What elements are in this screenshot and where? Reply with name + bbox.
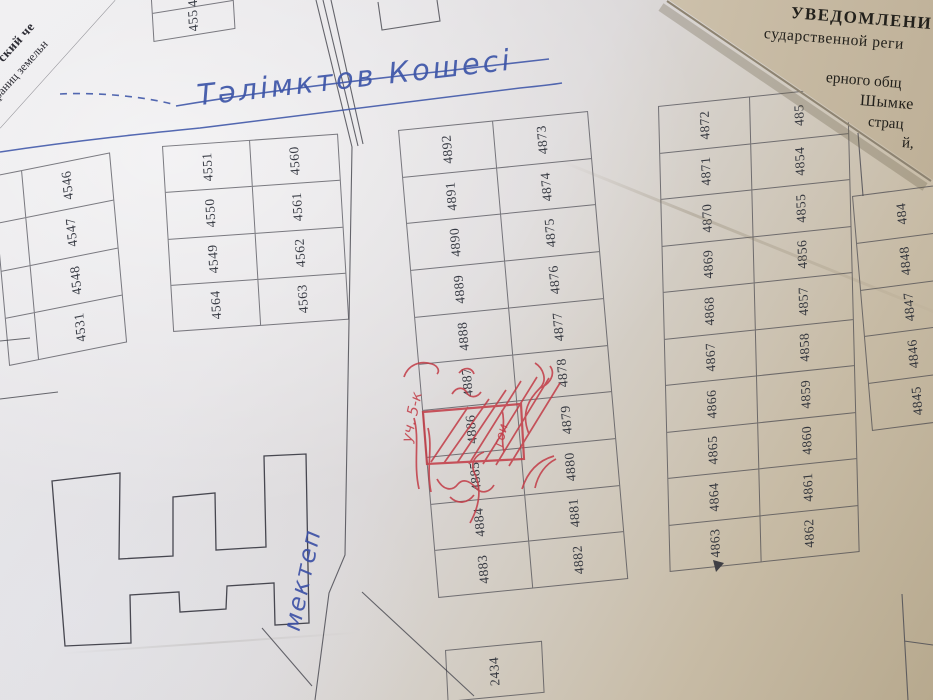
street-edge-blue-line (60, 94, 172, 104)
red-scribble (404, 363, 438, 377)
notification-text: ерного общ (825, 69, 902, 93)
pen-annotations (0, 0, 933, 700)
red-scribble (522, 456, 556, 489)
red-scribble (459, 369, 474, 374)
red-scribble (437, 479, 494, 492)
notification-text: Шымке (859, 92, 914, 114)
red-scribble (452, 388, 481, 396)
red-hatching (431, 377, 560, 466)
notification-text: страц (867, 114, 904, 134)
notification-text: й, (901, 135, 914, 153)
red-scribble (450, 495, 474, 502)
photographed-cadastral-plan: 4552455 4546454745484531 455145504549456… (0, 0, 933, 700)
ink-mark (713, 560, 724, 572)
